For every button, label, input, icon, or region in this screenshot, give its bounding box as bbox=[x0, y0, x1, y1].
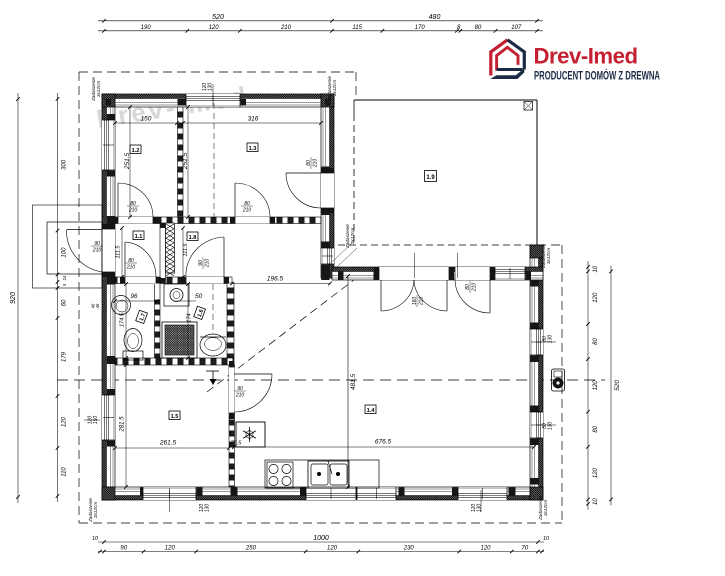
svg-text:1.8: 1.8 bbox=[189, 235, 197, 241]
svg-text:300: 300 bbox=[62, 159, 68, 170]
svg-text:281.5: 281.5 bbox=[120, 416, 126, 433]
svg-text:120: 120 bbox=[327, 546, 338, 552]
svg-text:1.4: 1.4 bbox=[367, 408, 376, 414]
svg-text:676.5: 676.5 bbox=[375, 439, 392, 446]
svg-text:190: 190 bbox=[141, 25, 152, 31]
svg-text:120: 120 bbox=[593, 380, 599, 391]
svg-text:210: 210 bbox=[235, 393, 245, 399]
svg-text:1.9: 1.9 bbox=[426, 175, 435, 181]
svg-text:100: 100 bbox=[62, 247, 68, 258]
svg-text:170: 170 bbox=[415, 25, 426, 31]
svg-text:80: 80 bbox=[475, 25, 482, 31]
svg-text:230: 230 bbox=[403, 546, 415, 552]
svg-text:46: 46 bbox=[95, 303, 100, 308]
svg-text:1.2: 1.2 bbox=[132, 148, 140, 154]
svg-text:480: 480 bbox=[429, 14, 441, 21]
svg-text:60: 60 bbox=[62, 299, 68, 306]
svg-text:111.5: 111.5 bbox=[116, 245, 122, 259]
svg-text:24: 24 bbox=[62, 275, 67, 281]
svg-text:120: 120 bbox=[480, 546, 491, 552]
svg-text:210: 210 bbox=[205, 259, 211, 269]
svg-text:210: 210 bbox=[128, 208, 138, 214]
svg-text:210: 210 bbox=[280, 25, 292, 31]
svg-text:120: 120 bbox=[165, 546, 176, 552]
svg-text:10: 10 bbox=[543, 536, 550, 542]
svg-text:210: 210 bbox=[242, 208, 252, 214]
svg-text:96: 96 bbox=[131, 294, 138, 300]
svg-text:520: 520 bbox=[614, 380, 621, 391]
svg-text:110: 110 bbox=[62, 467, 68, 477]
svg-text:481.5: 481.5 bbox=[350, 373, 357, 390]
svg-text:250: 250 bbox=[245, 546, 257, 552]
svg-text:130: 130 bbox=[548, 335, 554, 344]
svg-text:10: 10 bbox=[92, 536, 99, 542]
svg-text:920: 920 bbox=[10, 292, 17, 304]
svg-text:70: 70 bbox=[522, 546, 529, 552]
svg-text:107: 107 bbox=[511, 25, 522, 31]
svg-text:3x12cm: 3x12cm bbox=[546, 248, 551, 264]
svg-text:251.5: 251.5 bbox=[182, 152, 189, 170]
svg-text:1000: 1000 bbox=[313, 535, 329, 542]
svg-text:3x12cm: 3x12cm bbox=[93, 502, 98, 518]
svg-text:120: 120 bbox=[209, 25, 220, 31]
svg-text:210: 210 bbox=[313, 159, 319, 169]
svg-text:1.1: 1.1 bbox=[135, 234, 143, 240]
svg-text:Drev-Imed: Drev-Imed bbox=[534, 44, 638, 69]
svg-text:174: 174 bbox=[187, 313, 193, 322]
svg-text:75.5: 75.5 bbox=[231, 441, 243, 447]
svg-text:1.5: 1.5 bbox=[171, 414, 179, 420]
svg-text:196.5: 196.5 bbox=[267, 276, 284, 283]
svg-text:130: 130 bbox=[205, 504, 211, 513]
svg-text:150: 150 bbox=[141, 116, 152, 123]
svg-text:90: 90 bbox=[120, 546, 127, 552]
svg-text:210: 210 bbox=[92, 248, 102, 254]
svg-text:251.5: 251.5 bbox=[124, 152, 131, 170]
svg-text:115: 115 bbox=[352, 25, 362, 31]
svg-text:3x12cm: 3x12cm bbox=[332, 80, 337, 96]
svg-text:316: 316 bbox=[248, 116, 259, 123]
svg-text:3x12cm: 3x12cm bbox=[96, 81, 101, 97]
svg-text:174.5: 174.5 bbox=[120, 312, 126, 327]
svg-text:179: 179 bbox=[62, 351, 68, 362]
svg-text:1.3: 1.3 bbox=[249, 146, 257, 152]
svg-text:120: 120 bbox=[593, 292, 599, 303]
svg-text:PRODUCENT DOMÓW Z DREWNA: PRODUCENT DOMÓW Z DREWNA bbox=[534, 68, 660, 83]
svg-text:130: 130 bbox=[208, 83, 214, 92]
svg-text:80: 80 bbox=[593, 338, 599, 345]
svg-text:10: 10 bbox=[593, 498, 599, 505]
svg-text:210: 210 bbox=[472, 283, 478, 293]
svg-text:261.5: 261.5 bbox=[159, 440, 177, 447]
svg-text:120: 120 bbox=[62, 416, 68, 427]
svg-text:50: 50 bbox=[195, 293, 203, 300]
svg-text:3x12cm: 3x12cm bbox=[543, 500, 548, 516]
svg-text:111.5: 111.5 bbox=[183, 243, 189, 257]
svg-text:120: 120 bbox=[593, 467, 599, 478]
svg-text:10: 10 bbox=[593, 265, 599, 272]
svg-text:520: 520 bbox=[212, 14, 224, 21]
svg-text:130: 130 bbox=[548, 422, 554, 431]
svg-text:210: 210 bbox=[419, 297, 425, 307]
svg-text:3x12cm: 3x12cm bbox=[350, 228, 355, 244]
svg-text:150: 150 bbox=[93, 416, 99, 425]
svg-text:80: 80 bbox=[593, 425, 599, 432]
svg-text:130: 130 bbox=[477, 504, 483, 513]
svg-text:210: 210 bbox=[126, 265, 136, 271]
